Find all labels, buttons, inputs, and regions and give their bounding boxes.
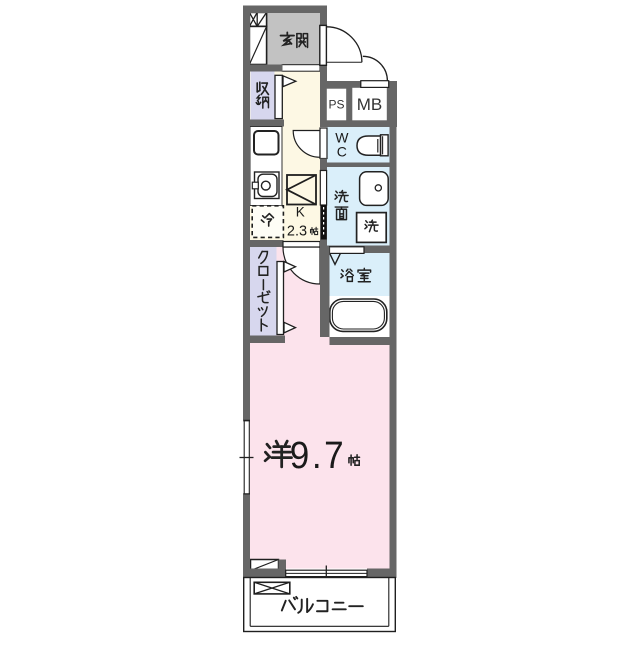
svg-text:C: C [337, 144, 347, 160]
svg-text:PS: PS [328, 98, 344, 112]
svg-text:9.7: 9.7 [290, 434, 347, 477]
svg-text:K: K [296, 204, 305, 219]
svg-text:MB: MB [357, 95, 383, 114]
svg-text:2.3: 2.3 [287, 224, 307, 240]
